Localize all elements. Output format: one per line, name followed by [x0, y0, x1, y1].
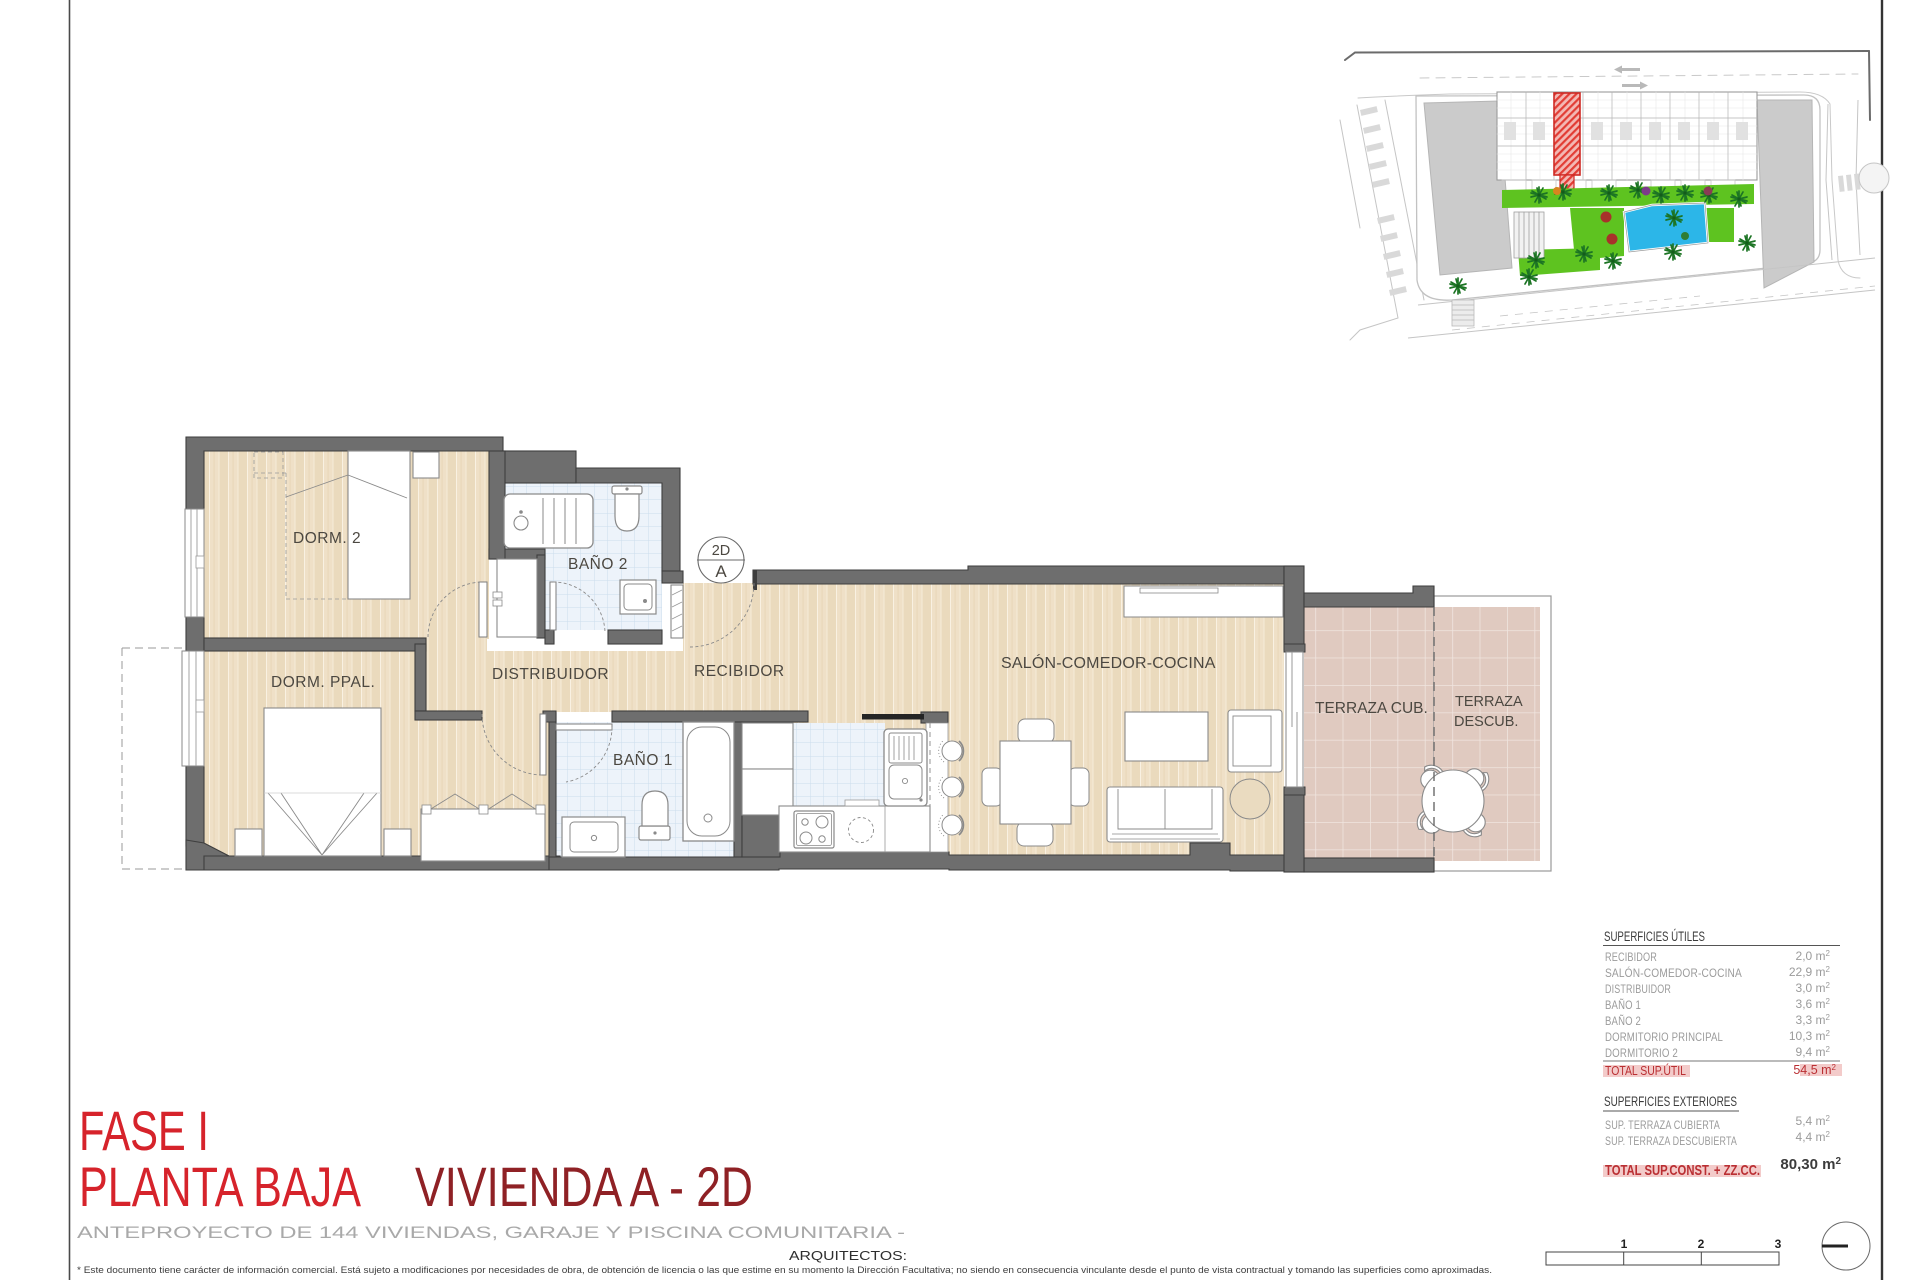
svg-text:3,6 m2: 3,6 m2: [1796, 997, 1831, 1011]
svg-text:DESCUB.: DESCUB.: [1454, 714, 1518, 730]
svg-text:3,3 m2: 3,3 m2: [1796, 1013, 1831, 1027]
svg-text:TOTAL SUP.CONST. + ZZ.CC.: TOTAL SUP.CONST. + ZZ.CC.: [1605, 1162, 1760, 1179]
svg-text:FASE I: FASE I: [79, 1099, 209, 1162]
svg-text:54,5 m2: 54,5 m2: [1793, 1063, 1836, 1077]
svg-text:SALÓN-COMEDOR-COCINA: SALÓN-COMEDOR-COCINA: [1605, 965, 1742, 980]
svg-text:4,4 m2: 4,4 m2: [1796, 1130, 1831, 1144]
svg-text:BAÑO 1: BAÑO 1: [613, 752, 673, 769]
svg-text:DISTRIBUIDOR: DISTRIBUIDOR: [1605, 982, 1671, 996]
svg-text:5,4 m2: 5,4 m2: [1796, 1114, 1831, 1128]
svg-text:BAÑO 2: BAÑO 2: [568, 556, 628, 573]
svg-text:1: 1: [1621, 1237, 1628, 1251]
svg-text:DORM. 2: DORM. 2: [293, 530, 361, 547]
svg-text:BAÑO 1: BAÑO 1: [1605, 998, 1641, 1012]
svg-text:SUP. TERRAZA DESCUBIERTA: SUP. TERRAZA DESCUBIERTA: [1605, 1134, 1737, 1148]
svg-text:22,9 m2: 22,9 m2: [1789, 965, 1831, 979]
svg-text:RECIBIDOR: RECIBIDOR: [694, 663, 785, 680]
svg-text:10,3 m2: 10,3 m2: [1789, 1029, 1831, 1043]
svg-text:3,0 m2: 3,0 m2: [1796, 981, 1831, 995]
svg-text:DORM. PPAL.: DORM. PPAL.: [271, 674, 375, 691]
svg-text:BAÑO 2: BAÑO 2: [1605, 1014, 1641, 1028]
svg-text:80,30 m2: 80,30 m2: [1780, 1156, 1841, 1173]
svg-text:A: A: [715, 562, 727, 581]
svg-text:TERRAZA CUB.: TERRAZA CUB.: [1315, 700, 1428, 717]
svg-text:SUP. TERRAZA CUBIERTA: SUP. TERRAZA CUBIERTA: [1605, 1118, 1720, 1132]
svg-text:TOTAL SUP.ÚTIL: TOTAL SUP.ÚTIL: [1605, 1063, 1686, 1078]
svg-text:2D: 2D: [712, 543, 731, 559]
svg-text:SUPERFICIES ÚTILES: SUPERFICIES ÚTILES: [1604, 929, 1705, 944]
svg-text:9,4 m2: 9,4 m2: [1796, 1045, 1831, 1059]
svg-text:2: 2: [1698, 1237, 1705, 1251]
svg-text:SALÓN-COMEDOR-COCINA: SALÓN-COMEDOR-COCINA: [1001, 653, 1216, 672]
svg-text:VIVIENDA A - 2D: VIVIENDA A - 2D: [415, 1155, 753, 1218]
svg-text:DORMITORIO 2: DORMITORIO 2: [1605, 1046, 1678, 1060]
svg-text:DISTRIBUIDOR: DISTRIBUIDOR: [492, 666, 609, 683]
svg-text:TERRAZA: TERRAZA: [1455, 694, 1523, 710]
svg-text:DORMITORIO PRINCIPAL: DORMITORIO PRINCIPAL: [1605, 1030, 1723, 1044]
svg-text:ANTEPROYECTO DE 144 VIVIENDAS,: ANTEPROYECTO DE 144 VIVIENDAS, GARAJE Y …: [77, 1223, 905, 1242]
svg-text:* Este documento tiene carácte: * Este documento tiene carácter de infor…: [77, 1265, 1492, 1275]
svg-text:RECIBIDOR: RECIBIDOR: [1605, 950, 1657, 964]
svg-text:PLANTA BAJA: PLANTA BAJA: [79, 1155, 361, 1218]
svg-text:3: 3: [1775, 1237, 1782, 1251]
svg-text:2,0 m2: 2,0 m2: [1796, 949, 1831, 963]
svg-text:ARQUITECTOS:: ARQUITECTOS:: [789, 1248, 907, 1263]
svg-text:SUPERFICIES EXTERIORES: SUPERFICIES EXTERIORES: [1604, 1094, 1737, 1109]
